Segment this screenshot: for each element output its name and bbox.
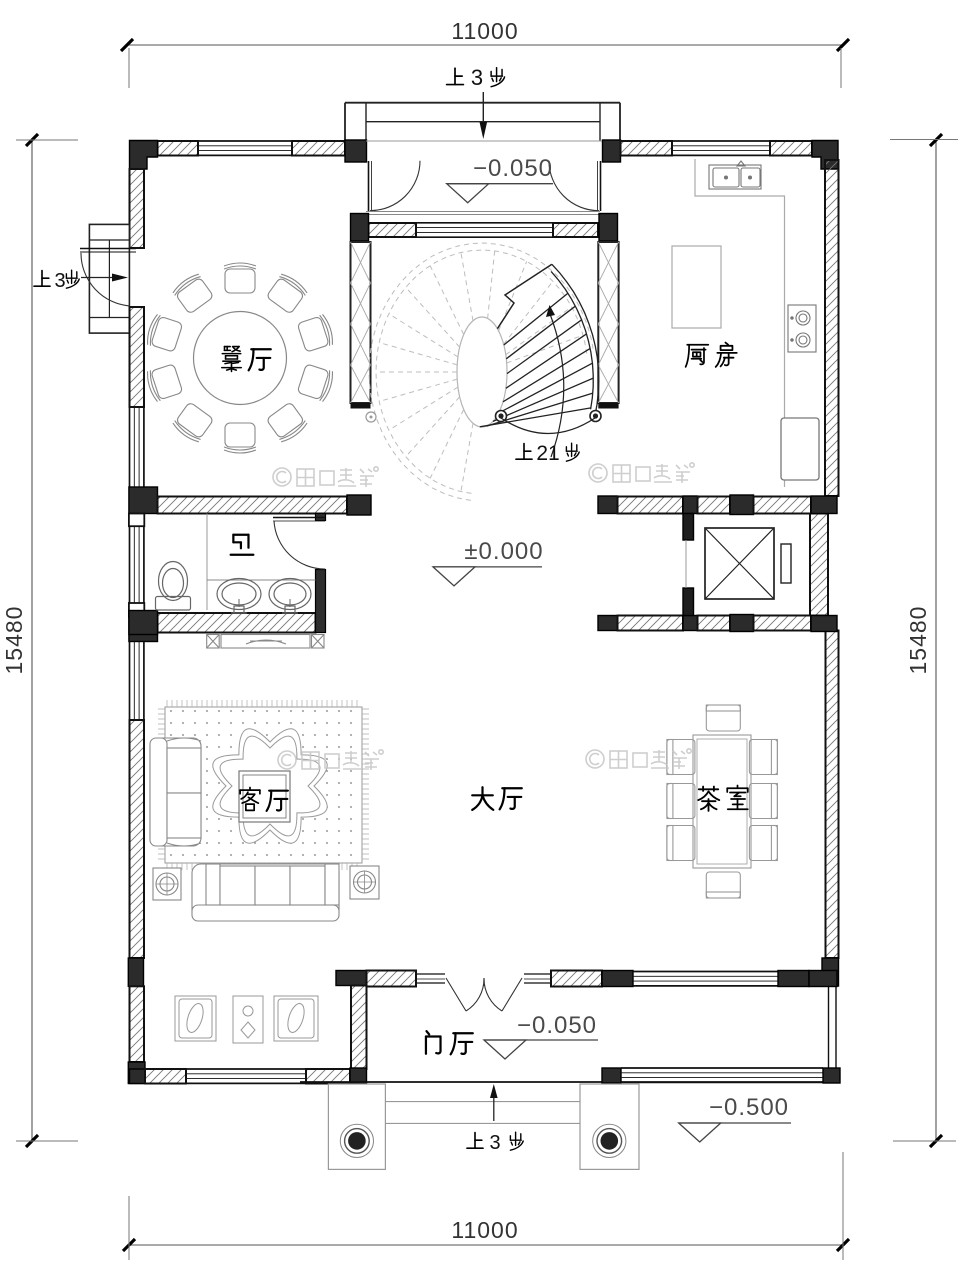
svg-text:15480: 15480	[905, 606, 931, 675]
svg-text:21: 21	[536, 442, 559, 465]
svg-text:3: 3	[471, 65, 483, 90]
svg-text:−0.050: −0.050	[517, 1012, 597, 1039]
svg-text:11000: 11000	[451, 18, 518, 44]
svg-text:3: 3	[54, 270, 65, 292]
svg-text:11000: 11000	[451, 1217, 518, 1243]
svg-text:−0.500: −0.500	[709, 1094, 789, 1121]
svg-text:3: 3	[489, 1132, 500, 1154]
svg-text:−0.050: −0.050	[473, 155, 553, 182]
svg-text:15480: 15480	[1, 606, 27, 675]
svg-text:±0.000: ±0.000	[464, 538, 543, 565]
